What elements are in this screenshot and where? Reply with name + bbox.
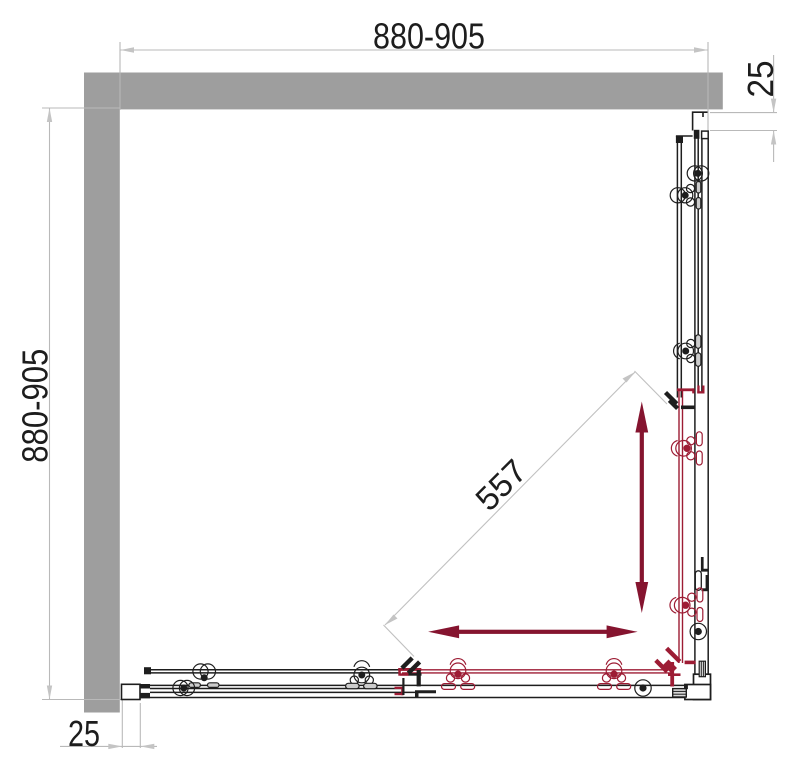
svg-text:880-905: 880-905 <box>373 15 485 56</box>
svg-text:25: 25 <box>68 713 100 754</box>
svg-text:25: 25 <box>740 61 781 98</box>
svg-text:880-905: 880-905 <box>15 349 56 463</box>
